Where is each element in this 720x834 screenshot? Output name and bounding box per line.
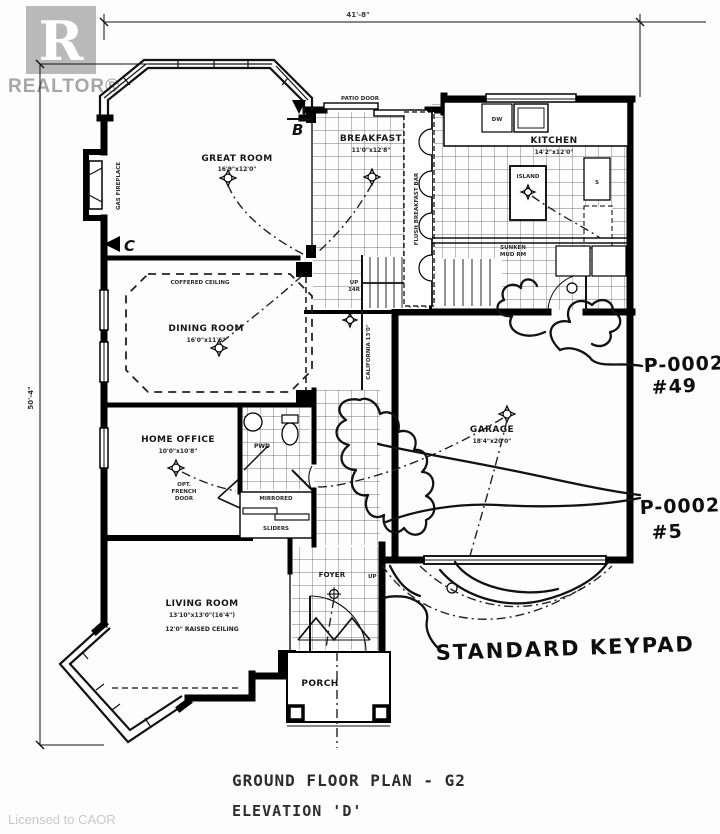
great-room-size: 16'9"x12'0" — [218, 166, 257, 173]
opt-french-door-label-2: FRENCH — [172, 489, 197, 495]
toilet — [282, 423, 298, 445]
garage-door — [424, 556, 606, 564]
light-fixture-icon — [168, 460, 184, 476]
bay-window-top — [100, 60, 312, 118]
elevation-title: ELEVATION 'D' — [232, 802, 362, 820]
stairs-risers-label: 14R — [348, 287, 361, 293]
window-office — [100, 428, 108, 468]
light-fixture-icon — [343, 313, 357, 327]
license-text: Licensed to CAOR — [8, 812, 116, 827]
california-ceiling-label: CALIFORNIA 13'0" — [366, 324, 372, 379]
floor-plan-drawing: R REALTOR® 41'-8" 50'-4" GA — [0, 0, 720, 834]
sink — [244, 413, 262, 431]
kitchen-size: 14'2"x12'0" — [535, 149, 574, 156]
footer-titles: GROUND FLOOR PLAN - G2 ELEVATION 'D' Lic… — [8, 771, 466, 827]
fridge — [584, 206, 612, 248]
island-label: ISLAND — [517, 174, 540, 180]
section-markers: B C — [104, 100, 311, 255]
annotation-p0002-49-line1: P-0002 — [643, 352, 720, 377]
section-c-label: C — [124, 237, 135, 255]
kitchen-label: KITCHEN — [530, 136, 577, 146]
dimension-top-label: 41'-8" — [346, 11, 369, 19]
breakfast-size: 11'0"x12'8" — [352, 147, 391, 154]
porch-column-right — [374, 706, 388, 720]
mirrored-closet: MIRRORED SLIDERS — [240, 492, 312, 538]
realtor-logo-letter: R — [39, 9, 85, 73]
garage-label: GARAGE — [470, 425, 514, 435]
home-office-label: HOME OFFICE — [141, 435, 215, 445]
living-room-size: 13'10"x13'0"(16'4") — [169, 612, 235, 619]
gas-fireplace: GAS FIREPLACE — [86, 152, 122, 218]
porch-label: PORCH — [301, 679, 338, 689]
garage-size: 18'4"x20'0" — [473, 438, 512, 445]
mirrored-sliders-label-1: MIRRORED — [259, 496, 293, 502]
dining-room-size: 16'0"x11'6" — [187, 337, 226, 344]
porch — [287, 652, 390, 748]
opt-french-door-label-3: DOOR — [175, 496, 194, 502]
dimension-left-label: 50'-4" — [27, 386, 35, 409]
section-b-label: B — [292, 121, 303, 139]
pantry-shelves — [584, 158, 610, 200]
great-room-label: GREAT ROOM — [201, 154, 272, 164]
floor-plan-page: R REALTOR® 41'-8" 50'-4" GA — [0, 0, 720, 834]
plan-title: GROUND FLOOR PLAN - G2 — [232, 771, 466, 790]
sunken-mud-label-2: MUD RM — [500, 252, 526, 258]
living-room-label: LIVING ROOM — [165, 599, 238, 609]
annotation-p0002-5-line2: #5 — [651, 520, 683, 544]
gas-fireplace-label: GAS FIREPLACE — [116, 162, 122, 210]
home-office-size: 10'0"x10'8" — [159, 448, 198, 455]
sunken-mud-label-1: SUNKEN — [500, 245, 526, 251]
shelves-label: S — [595, 180, 599, 186]
coffered-ceiling-label: COFFERED CEILING — [171, 280, 230, 286]
handwritten-annotations: P-0002 #49 P-0002 #5 STANDARD KEYPAD — [435, 352, 720, 665]
breakfast-bar-label: FLUSH BREAKFAST BAR — [414, 172, 420, 245]
porch-column-left — [289, 706, 303, 720]
french-door-office — [218, 478, 240, 508]
floor-drain — [567, 283, 577, 293]
window-dining-1 — [100, 290, 108, 330]
living-room-ceiling-note: 12'0" RAISED CEILING — [165, 626, 238, 633]
dishwasher-label: DW — [492, 117, 503, 123]
bay-window-bottom — [60, 624, 238, 742]
laundry-appliance-1 — [556, 246, 590, 276]
opt-french-door-label-1: OPT. — [177, 482, 191, 488]
stairs-up-label: UP — [350, 280, 359, 286]
annotation-standard-keypad: STANDARD KEYPAD — [435, 632, 695, 665]
laundry-appliance-2 — [592, 246, 626, 276]
realtor-logo: R REALTOR® — [8, 6, 120, 97]
window-dining-2 — [100, 342, 108, 382]
tile-floors — [242, 101, 628, 650]
mirrored-sliders-label-2: SLIDERS — [263, 526, 289, 532]
annotation-p0002-5-line1: P-0002 — [639, 494, 720, 519]
breakfast-label: BREAKFAST — [340, 134, 403, 144]
foyer-up-label: UP — [368, 574, 377, 580]
patio-door-label: PATIO DOOR — [341, 96, 380, 102]
foyer-label: FOYER — [319, 571, 346, 579]
dining-room-label: DINING ROOM — [168, 324, 243, 334]
annotation-p0002-49-line2: #49 — [651, 375, 697, 399]
